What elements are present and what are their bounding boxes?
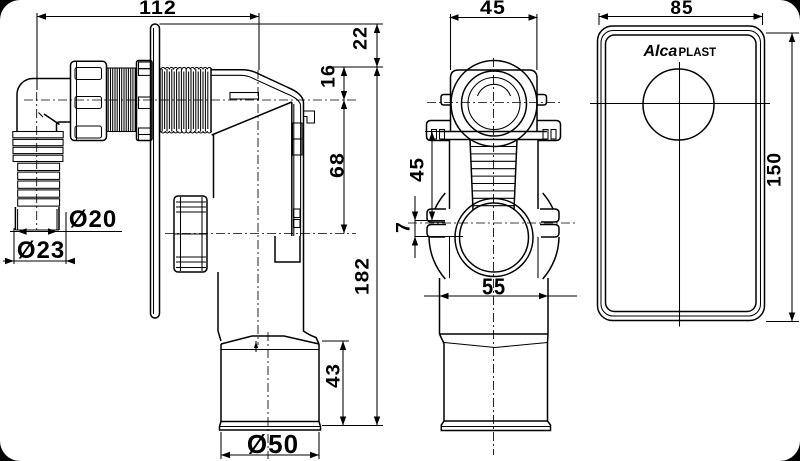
svg-text:Ø50: Ø50	[247, 429, 299, 459]
svg-text:16: 16	[318, 64, 340, 88]
svg-text:150: 150	[764, 152, 786, 187]
svg-text:22: 22	[350, 26, 372, 50]
svg-text:7: 7	[393, 221, 415, 233]
svg-text:182: 182	[352, 257, 374, 295]
svg-text:PLAST: PLAST	[679, 47, 717, 59]
svg-text:Ø20: Ø20	[69, 206, 117, 233]
svg-text:45: 45	[480, 0, 506, 19]
svg-text:Alca: Alca	[643, 43, 678, 60]
svg-text:45: 45	[407, 157, 429, 182]
svg-text:55: 55	[482, 274, 506, 300]
svg-text:43: 43	[323, 363, 345, 388]
svg-text:68: 68	[327, 152, 349, 178]
svg-text:Ø23: Ø23	[17, 237, 65, 264]
